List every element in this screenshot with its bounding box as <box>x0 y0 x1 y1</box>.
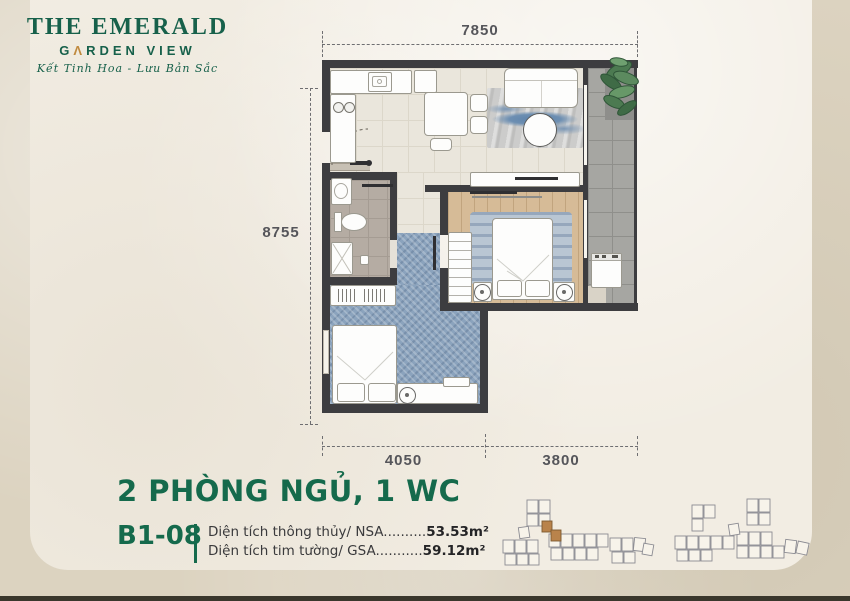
bathroom-shelf <box>360 255 369 265</box>
page: { "brand": { "name_line1": "THE EMERALD"… <box>0 0 850 601</box>
lamp-dot <box>562 290 566 294</box>
master-wardrobe <box>448 232 472 303</box>
balcony-corner-patch <box>588 286 606 303</box>
site-plan-highlight-unit-2 <box>551 530 561 541</box>
dining-chair-1 <box>470 94 488 112</box>
dimension-left-line <box>310 88 311 424</box>
washing-machine <box>591 253 622 288</box>
unit-code: B1-08 <box>117 521 202 551</box>
sink-drain <box>377 79 382 84</box>
dining-chair-2 <box>470 116 488 134</box>
area-line-gsa: Diện tích tim tường/ GSA...........59.12… <box>208 542 489 561</box>
gold-a-glyph: Λ <box>73 43 86 58</box>
site-plan-right-cluster <box>675 499 809 561</box>
hallway-floor <box>397 172 440 233</box>
lamp-dot <box>480 290 484 294</box>
wall-bottom-bedroom2 <box>322 404 488 413</box>
bedroom2-bench <box>443 377 470 387</box>
area-info: Diện tích thông thủy/ NSA..........53.53… <box>208 523 489 561</box>
dimension-bottom-right-label: 3800 <box>485 452 637 469</box>
master-pillow-right <box>525 280 550 297</box>
site-plan <box>497 497 815 567</box>
entrance-door-hinge <box>366 160 372 166</box>
curtain-rail <box>472 196 542 198</box>
wall-master-left-a <box>440 192 448 235</box>
bedside-lamp-left <box>474 284 491 301</box>
stove-burner-2 <box>344 102 355 113</box>
wall-bottom-master <box>440 303 638 311</box>
wall-left-mid <box>322 163 330 285</box>
washer-knob <box>602 255 606 258</box>
wall-right-bedroom2 <box>480 310 488 404</box>
unit-title: 2 PHÒNG NGỦ, 1 WC <box>117 474 460 508</box>
dimension-bottom-tick-3 <box>637 436 638 456</box>
living-tv <box>515 177 558 180</box>
bathroom-door-threshold <box>390 240 397 268</box>
bedroom2-pillow-right <box>368 383 396 402</box>
wardrobe-hangers-1 <box>338 289 358 302</box>
dimension-top-tick-right <box>637 31 638 57</box>
floor-plan <box>322 60 638 413</box>
coffee-table <box>523 113 557 147</box>
brand-name-line1: THE EMERALD <box>25 14 230 41</box>
wardrobe-hangers-2 <box>364 289 386 302</box>
dimension-top-label: 7850 <box>322 22 638 39</box>
bedside-lamp-right <box>556 284 573 301</box>
bathroom-vanity <box>331 178 352 205</box>
dining-table <box>424 92 468 136</box>
site-plan-highlight-unit <box>542 521 552 532</box>
towel-rail <box>362 184 393 187</box>
wall-master-left-b <box>440 268 448 303</box>
site-plan-highlight <box>542 521 561 541</box>
balcony-plant <box>596 52 642 124</box>
wall-bathroom-right-a <box>390 180 397 240</box>
brand-tagline: Kết Tinh Hoa - Lưu Bản Sắc <box>25 62 230 75</box>
dimension-top-line <box>322 44 638 45</box>
kitchen-sink <box>368 72 392 92</box>
master-pillow-left <box>497 280 522 297</box>
site-plan-left-cluster <box>503 500 654 565</box>
dimension-left-tick-bottom <box>300 424 318 425</box>
bedroom2-lamp <box>399 387 416 404</box>
dimension-bottom-left-label: 4050 <box>322 452 485 469</box>
info-divider <box>194 524 197 563</box>
vanity-basin <box>334 183 348 199</box>
wall-top <box>322 60 638 68</box>
lamp-dot <box>405 393 409 397</box>
bottom-border-strip <box>0 596 850 601</box>
dimension-left-label: 8755 <box>258 224 304 241</box>
master-tv <box>470 191 517 194</box>
kitchen-tall-cabinet <box>414 70 437 93</box>
sofa-back <box>505 69 577 81</box>
area-line-nsa: Diện tích thông thủy/ NSA..........53.53… <box>208 523 489 542</box>
shower <box>331 242 353 275</box>
bedroom2-window <box>323 330 329 374</box>
bedroom2-pillow-left <box>337 383 365 402</box>
stove-burner-1 <box>333 102 344 113</box>
master-door-leaf <box>433 236 436 270</box>
dimension-left-tick-top <box>300 88 318 89</box>
toilet-bowl <box>341 213 367 231</box>
wall-bathroom-bottom <box>322 277 397 285</box>
dining-chair-3 <box>430 138 452 151</box>
sofa <box>504 68 578 108</box>
washer-knob <box>595 255 599 258</box>
master-balcony-glass <box>584 200 587 258</box>
sofa-seam <box>541 81 542 107</box>
dimension-bottom-line <box>322 446 638 447</box>
shower-x-lines <box>332 243 352 274</box>
wall-left-upper <box>322 68 330 132</box>
dimension-top-tick-left <box>322 31 323 57</box>
living-balcony-glass <box>584 85 587 165</box>
brand-logo: THE EMERALD GΛRDEN VIEW Kết Tinh Hoa - L… <box>25 14 230 75</box>
washer-display <box>612 255 618 258</box>
brand-name-line2: GΛRDEN VIEW <box>25 43 230 58</box>
